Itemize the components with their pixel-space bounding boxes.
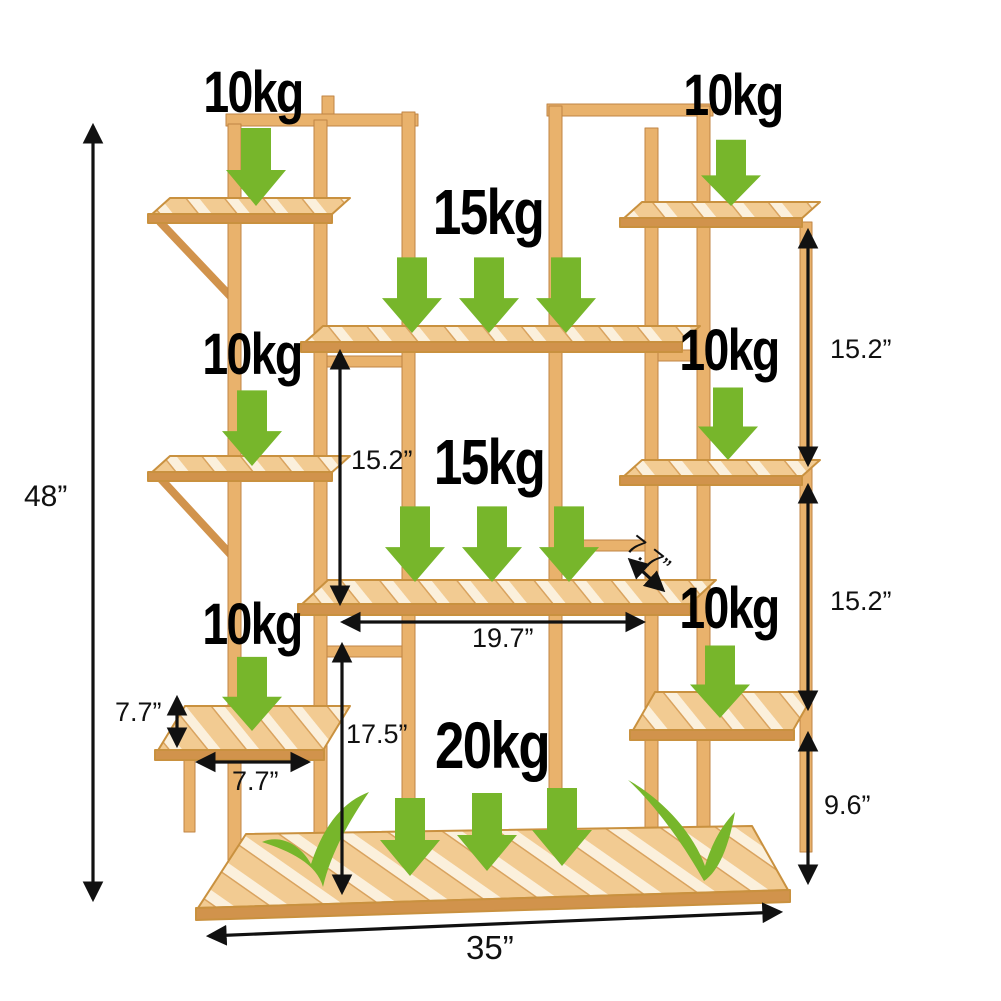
dim-center-shelf-width: 19.7” [472, 625, 534, 652]
shelf-braces [160, 222, 232, 556]
shelf-top-left [148, 198, 350, 223]
down-arrow-icon [536, 257, 596, 333]
dim-side-shelf-width: 7.7” [232, 768, 279, 795]
weight-label-top-right: 10kg [683, 67, 782, 125]
weight-label-lower-left: 10kg [202, 596, 301, 654]
diagram-canvas: 10kg 10kg 15kg 10kg 10kg 15kg 10kg 10kg … [0, 0, 1001, 1001]
shelf-mid-right [620, 460, 820, 485]
dim-lower-center-gap: 17.5” [346, 721, 408, 748]
weight-label-top-left: 10kg [203, 64, 302, 122]
dim-center-tier-gap: 15.2” [351, 447, 413, 474]
plant-stand-diagram [0, 0, 1001, 1001]
weight-label-bottom: 20kg [435, 712, 549, 778]
weight-label-lower-right: 10kg [679, 580, 778, 638]
shelf-top-right [620, 202, 820, 227]
weight-label-upper-center: 15kg [433, 180, 543, 244]
dim-upper-right-gap: 15.2” [830, 336, 892, 363]
weight-label-mid-right: 10kg [679, 322, 778, 380]
shelf-upper-center [301, 326, 700, 352]
down-arrow-icon [385, 506, 445, 582]
down-arrow-icon [382, 257, 442, 333]
down-arrow-icon [462, 506, 522, 582]
shelf-center [298, 580, 716, 615]
dim-base-height: 9.6” [824, 792, 871, 819]
down-arrow-icon [459, 257, 519, 333]
dim-overall-width: 35” [466, 931, 514, 964]
weight-label-mid-left: 10kg [202, 326, 301, 384]
weight-label-center: 15kg [434, 430, 544, 494]
dim-overall-height: 48” [24, 482, 67, 512]
dim-side-shelf-height: 7.7” [115, 699, 162, 726]
dim-middle-right-gap: 15.2” [830, 588, 892, 615]
